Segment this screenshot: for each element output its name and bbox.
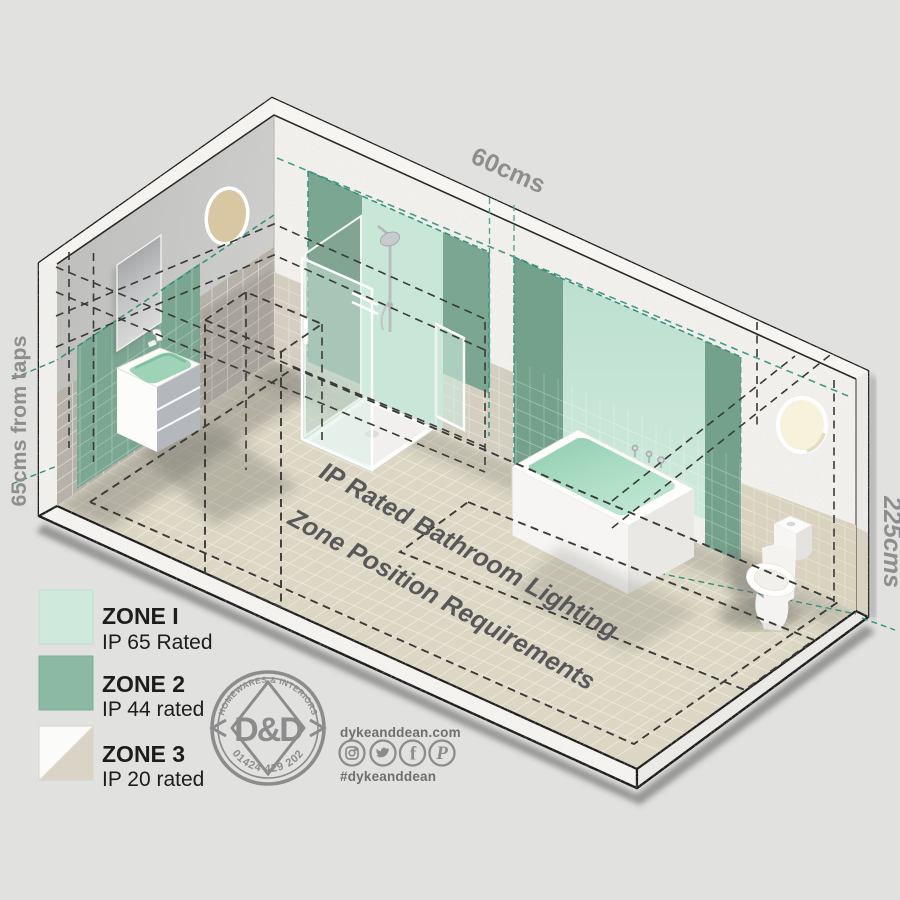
- svg-text:IP 65 Rated: IP 65 Rated: [102, 631, 213, 654]
- svg-text:ZONE I: ZONE I: [102, 603, 179, 629]
- svg-text:P: P: [435, 743, 448, 764]
- svg-text:f: f: [410, 744, 417, 765]
- svg-text:ZONE 2: ZONE 2: [102, 671, 185, 697]
- svg-text:D&D: D&D: [234, 711, 303, 749]
- svg-text:65cms from taps: 65cms from taps: [7, 336, 31, 507]
- svg-text:#dykeanddean: #dykeanddean: [340, 769, 436, 784]
- svg-text:dykeanddean.com: dykeanddean.com: [340, 725, 461, 740]
- svg-text:ZONE 3: ZONE 3: [102, 741, 185, 767]
- svg-text:IP 44 rated: IP 44 rated: [102, 698, 204, 721]
- svg-text:225cms: 225cms: [878, 495, 900, 588]
- svg-text:IP 20 rated: IP 20 rated: [102, 768, 204, 791]
